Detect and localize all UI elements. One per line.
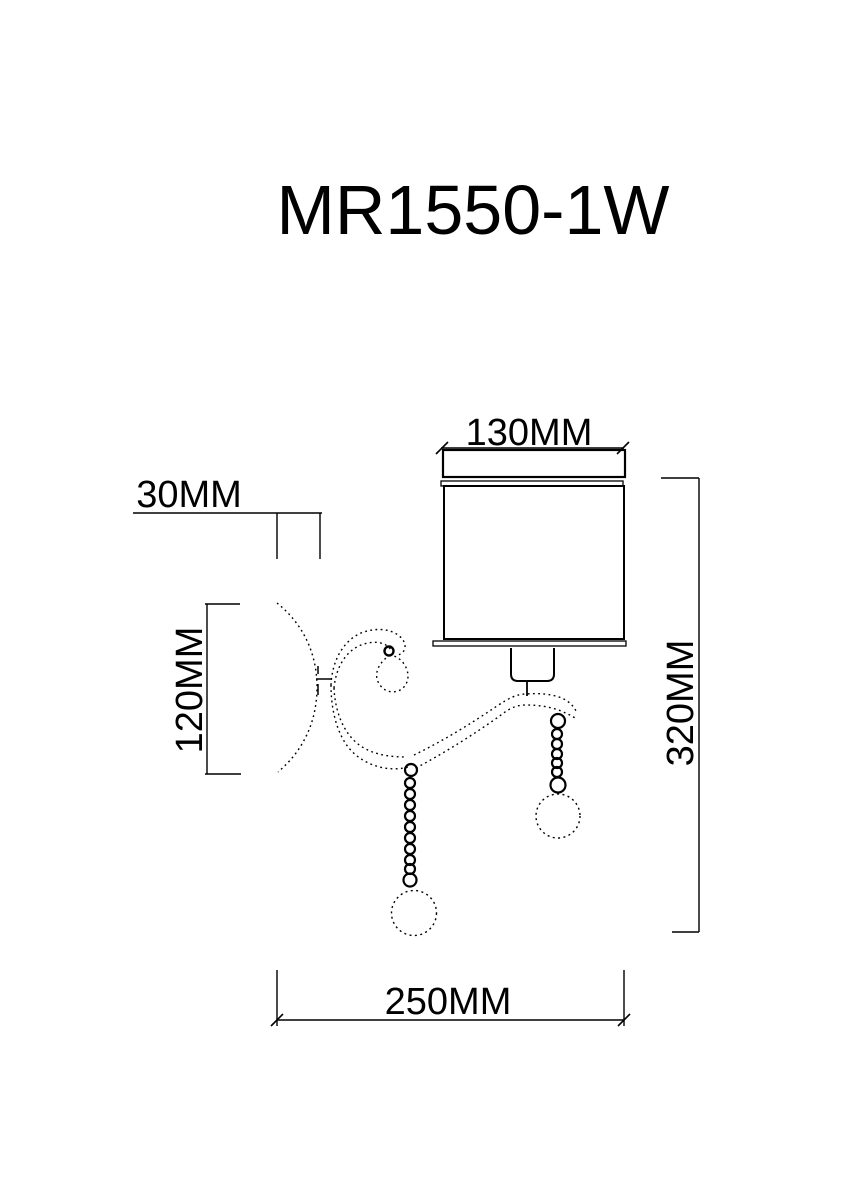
scroll-lower-outer	[331, 685, 408, 769]
chain-right-top-ring	[551, 714, 565, 728]
dim-label-overall-height: 320MM	[662, 640, 700, 767]
scroll-knot-ornament	[385, 647, 394, 656]
crystal-ball-left	[392, 891, 437, 936]
dim-label-shade-width: 130MM	[466, 414, 593, 452]
crystal-ball-right	[536, 794, 580, 838]
shade-bottom-rim	[433, 641, 626, 646]
scroll-curl-outer	[331, 629, 405, 685]
scroll-lower-inner	[334, 688, 406, 757]
backplate-arc	[277, 603, 317, 772]
arm-lower-edge	[416, 705, 575, 768]
shade-body	[444, 486, 624, 639]
chain-left-bottom-ring	[404, 874, 417, 887]
scroll-curl-inner	[334, 642, 391, 688]
teardrop-crystal	[377, 655, 408, 692]
shade-top-rim	[443, 450, 625, 477]
dim-wall-depth	[133, 513, 322, 559]
wall-backplate	[277, 603, 317, 772]
chain-right-bottom-ring	[551, 778, 566, 793]
drawing-page: MR1550-1W 130MM 30MM 120MM 320MM 250MM	[0, 0, 848, 1200]
lamp-holder	[511, 648, 554, 681]
dim-label-backplate-height: 120MM	[171, 627, 209, 754]
chain-left-top-ring	[405, 764, 417, 776]
dim-label-overall-width: 250MM	[385, 983, 512, 1021]
chain-pendant-right	[551, 714, 566, 793]
backplate-stub	[316, 666, 332, 695]
lamp-shade	[433, 450, 626, 696]
scroll-arm	[331, 629, 577, 768]
chain-pendant-left	[404, 764, 418, 887]
model-number: MR1550-1W	[277, 175, 670, 245]
dim-label-wall-depth: 30MM	[136, 476, 242, 514]
